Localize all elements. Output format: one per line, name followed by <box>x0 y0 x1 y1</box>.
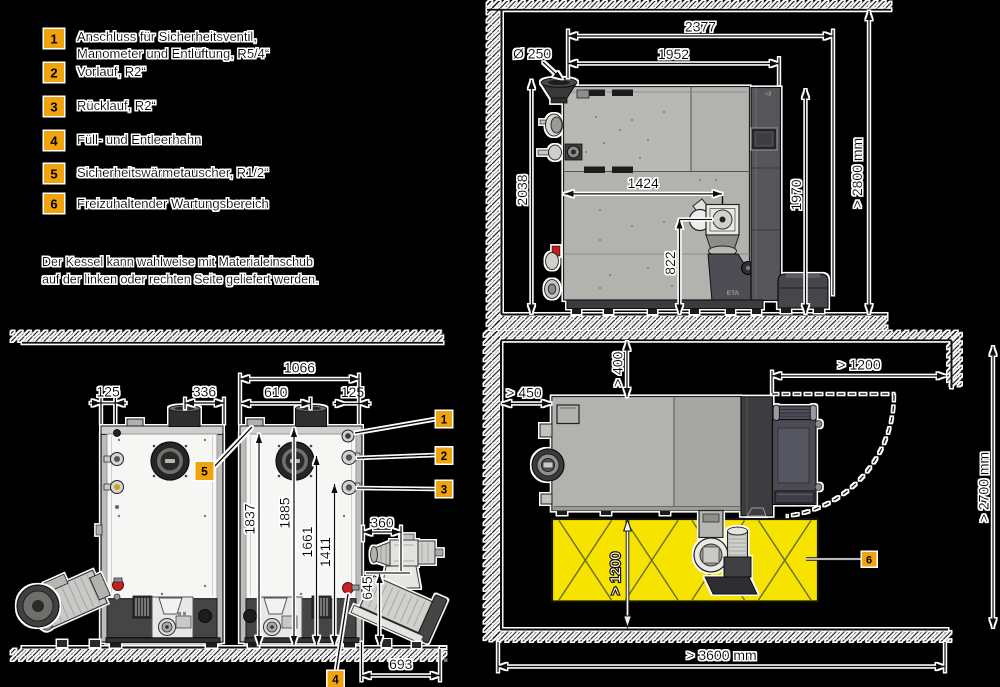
svg-text:693: 693 <box>389 656 413 672</box>
svg-text:1837: 1837 <box>242 503 258 534</box>
svg-text:○3: ○3 <box>765 92 771 98</box>
svg-text:Manometer und Entlüftung, R5/4: Manometer und Entlüftung, R5/4“ <box>77 46 269 61</box>
svg-text:> 1200: > 1200 <box>837 357 880 373</box>
svg-text:auf der linken oder rechten Se: auf der linken oder rechten Seite gelief… <box>42 273 319 287</box>
svg-text:Rücklauf, R2“: Rücklauf, R2“ <box>77 98 156 113</box>
svg-text:5: 5 <box>201 465 208 479</box>
svg-text:1411: 1411 <box>317 537 333 567</box>
svg-text:360: 360 <box>370 515 394 531</box>
svg-text:1: 1 <box>50 32 57 47</box>
svg-text:Anschluss für Sicherheitsventi: Anschluss für Sicherheitsventil, <box>77 29 257 44</box>
svg-text:6: 6 <box>866 555 872 567</box>
svg-text:2377: 2377 <box>685 19 716 35</box>
svg-text:> 3600 mm: > 3600 mm <box>686 647 756 663</box>
svg-text:336: 336 <box>193 384 217 400</box>
svg-text:1424: 1424 <box>628 175 659 191</box>
svg-text:> 400: > 400 <box>610 351 626 387</box>
svg-text:1066: 1066 <box>284 360 315 376</box>
svg-text:> 2700 mm: > 2700 mm <box>976 452 992 522</box>
svg-text:610: 610 <box>264 384 288 400</box>
svg-text:1885: 1885 <box>277 497 293 528</box>
svg-text:2: 2 <box>441 451 447 463</box>
svg-text:Ø 250: Ø 250 <box>513 46 551 62</box>
svg-text:> 450: > 450 <box>506 385 542 401</box>
svg-text:Füll- und Entleerhahn: Füll- und Entleerhahn <box>77 132 201 147</box>
svg-text:> 1200: > 1200 <box>607 552 623 595</box>
svg-text:Vorlauf, R2“: Vorlauf, R2“ <box>77 64 146 79</box>
svg-text:4: 4 <box>332 675 339 687</box>
svg-text:> 2800 mm: > 2800 mm <box>849 138 865 208</box>
svg-text:2: 2 <box>50 66 57 81</box>
svg-text:Freizuhaltender Wartungsbereic: Freizuhaltender Wartungsbereich <box>77 196 269 211</box>
svg-text:1661: 1661 <box>299 526 315 557</box>
svg-text:1: 1 <box>441 415 448 427</box>
svg-text:1952: 1952 <box>658 46 689 62</box>
svg-text:125: 125 <box>96 384 120 400</box>
svg-text:822: 822 <box>662 251 678 275</box>
svg-text:3: 3 <box>441 485 447 497</box>
svg-text:2038: 2038 <box>514 174 530 205</box>
svg-text:1970: 1970 <box>788 179 804 210</box>
svg-text:3: 3 <box>50 100 57 115</box>
svg-text:ETA: ETA <box>727 290 740 297</box>
svg-text:6: 6 <box>50 197 57 212</box>
svg-text:5: 5 <box>50 167 57 182</box>
svg-text:645: 645 <box>359 576 375 600</box>
svg-text:Der Kessel kann wahlweise mit: Der Kessel kann wahlweise mit Materialei… <box>42 255 313 269</box>
svg-text:125: 125 <box>341 384 365 400</box>
svg-text:Sicherheitswärmetauscher, R1/2: Sicherheitswärmetauscher, R1/2“ <box>77 165 268 180</box>
svg-text:4: 4 <box>50 134 58 149</box>
